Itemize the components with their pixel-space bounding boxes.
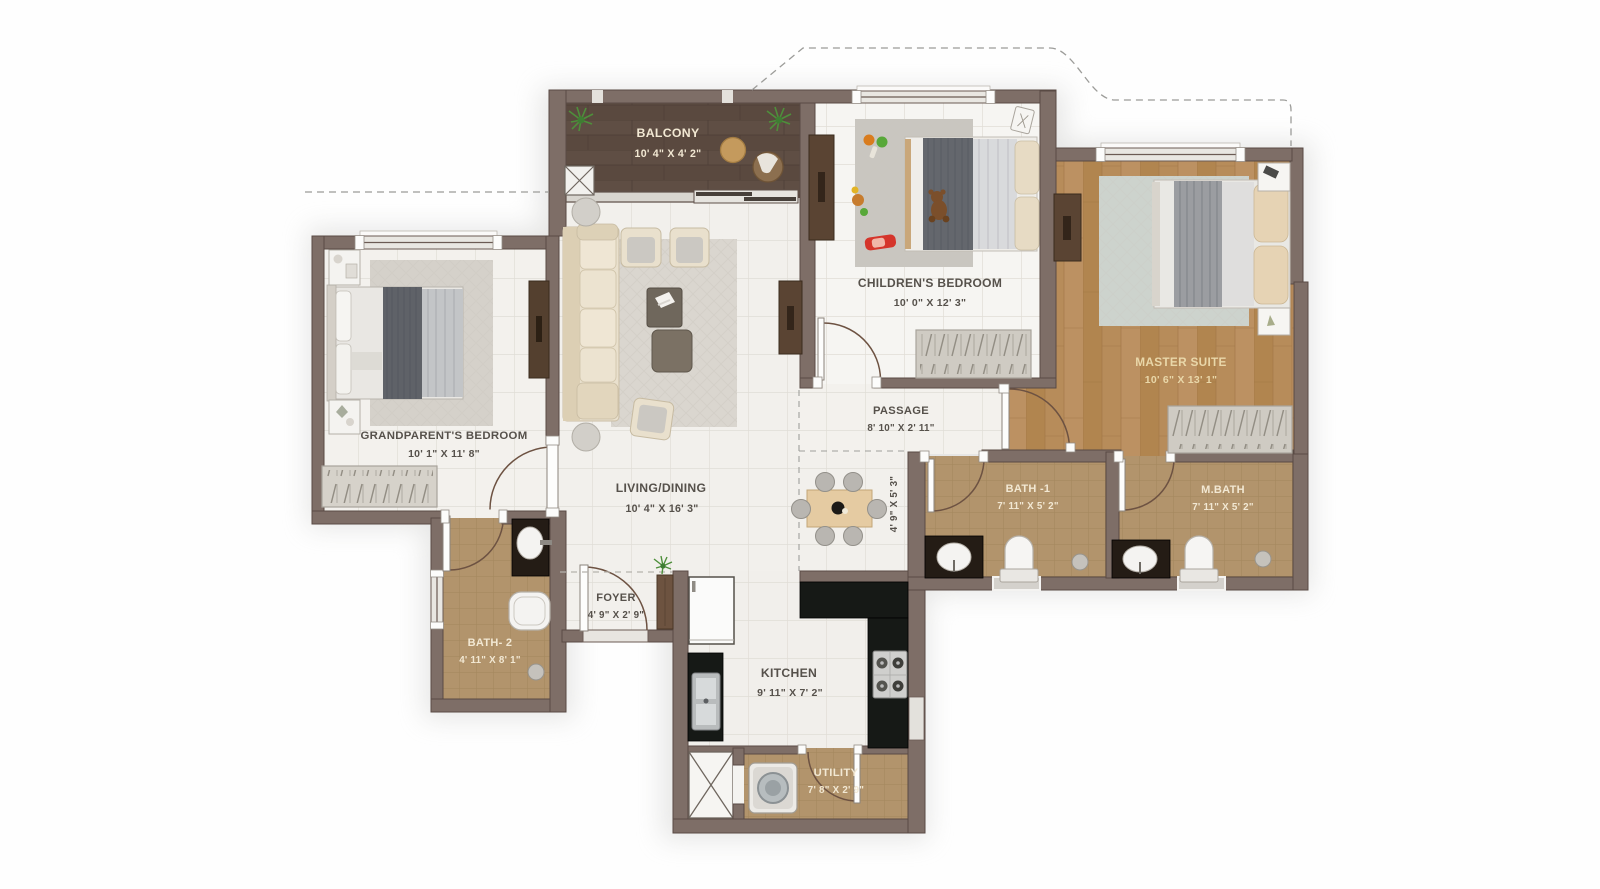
svg-text:BATH- 2: BATH- 2 bbox=[468, 637, 513, 649]
svg-text:BATH -1: BATH -1 bbox=[1006, 483, 1051, 495]
svg-text:10' 0" X 12' 3": 10' 0" X 12' 3" bbox=[894, 297, 966, 309]
svg-text:CHILDREN'S BEDROOM: CHILDREN'S BEDROOM bbox=[858, 276, 1002, 290]
svg-text:UTILITY: UTILITY bbox=[814, 767, 859, 779]
svg-text:4' 9" X 5' 3": 4' 9" X 5' 3" bbox=[889, 476, 900, 532]
svg-text:7' 11" X 5' 2": 7' 11" X 5' 2" bbox=[1192, 502, 1254, 513]
svg-text:10' 4" X 16' 3": 10' 4" X 16' 3" bbox=[625, 503, 698, 515]
svg-text:7' 8" X 2' 9": 7' 8" X 2' 9" bbox=[808, 785, 864, 796]
svg-text:BALCONY: BALCONY bbox=[637, 126, 700, 140]
svg-text:M.BATH: M.BATH bbox=[1201, 484, 1245, 496]
svg-text:LIVING/DINING: LIVING/DINING bbox=[616, 481, 707, 495]
svg-text:9' 11" X 7' 2": 9' 11" X 7' 2" bbox=[757, 687, 823, 699]
svg-text:10' 1" X 11' 8": 10' 1" X 11' 8" bbox=[408, 448, 480, 460]
svg-text:8' 10" X 2' 11": 8' 10" X 2' 11" bbox=[867, 423, 934, 434]
svg-text:KITCHEN: KITCHEN bbox=[761, 666, 817, 680]
svg-text:4' 9" X 2' 9": 4' 9" X 2' 9" bbox=[588, 610, 644, 621]
svg-text:FOYER: FOYER bbox=[596, 592, 635, 604]
svg-text:PASSAGE: PASSAGE bbox=[873, 405, 929, 417]
svg-text:GRANDPARENT'S BEDROOM: GRANDPARENT'S BEDROOM bbox=[360, 430, 527, 442]
svg-text:10' 6" X 13' 1": 10' 6" X 13' 1" bbox=[1145, 374, 1217, 386]
svg-text:7' 11" X 5' 2": 7' 11" X 5' 2" bbox=[997, 501, 1059, 512]
svg-text:10' 4" X 4' 2": 10' 4" X 4' 2" bbox=[635, 148, 702, 160]
svg-text:MASTER SUITE: MASTER SUITE bbox=[1135, 355, 1226, 369]
svg-text:4' 11" X 8' 1": 4' 11" X 8' 1" bbox=[459, 655, 521, 666]
